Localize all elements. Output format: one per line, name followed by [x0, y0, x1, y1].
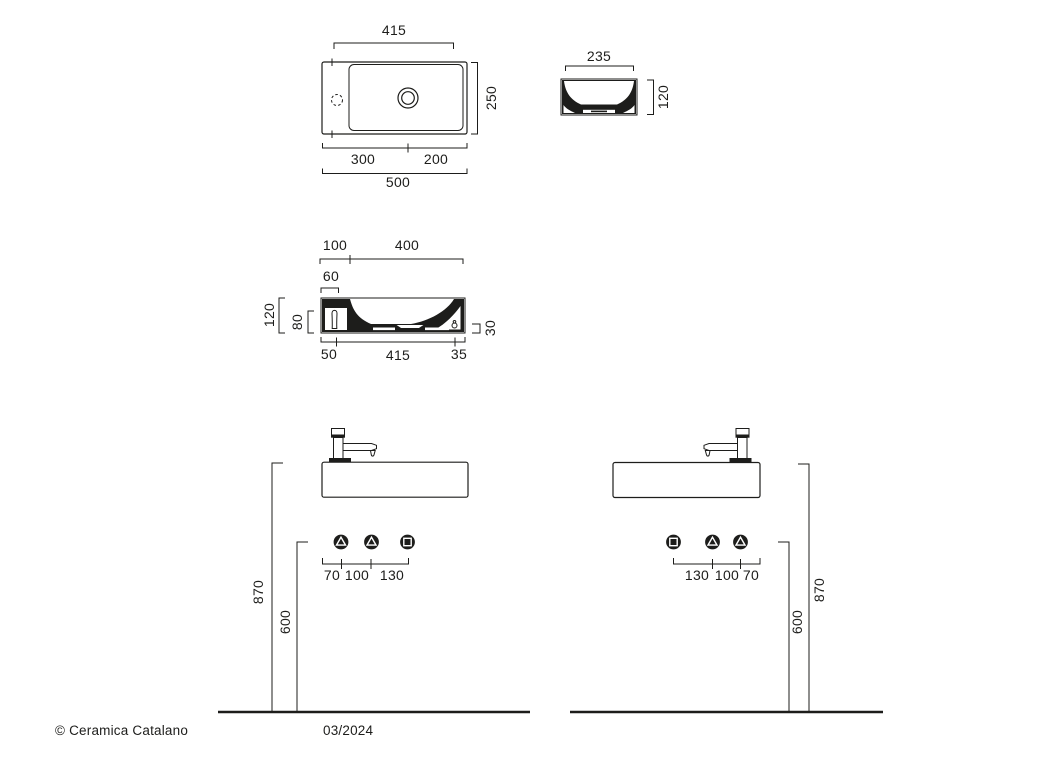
drain-hole-icon: [398, 88, 418, 108]
dim-label: 400: [395, 237, 419, 253]
water-supply-icon: [705, 535, 720, 550]
dim-label: 600: [789, 610, 805, 634]
copyright-text: © Ceramica Catalano: [55, 723, 188, 738]
dim-label: 235: [587, 48, 611, 64]
dim-label: 250: [483, 86, 499, 110]
dim-label: 100: [323, 237, 347, 253]
drawing-sheet: 415 250 300 200 500 235 120: [0, 0, 1041, 776]
dim-label: 60: [323, 268, 339, 284]
dim-label: 120: [655, 85, 671, 109]
technical-drawing: 415 250 300 200 500 235 120: [0, 0, 1041, 776]
dim-label: 35: [451, 346, 467, 362]
drain-connection-icon: [400, 535, 415, 550]
revision-date: 03/2024: [323, 723, 373, 738]
long-section-view: 100 400 60 120 80 50 415 35 30: [261, 237, 498, 363]
footer: © Ceramica Catalano 03/2024: [55, 723, 373, 738]
dim-label: 415: [382, 22, 406, 38]
dim-label: 300: [351, 151, 375, 167]
faucet-icon: [704, 429, 752, 463]
dim-label: 870: [811, 578, 827, 602]
dim-label: 200: [424, 151, 448, 167]
dim-label: 70: [324, 567, 340, 583]
washbasin-front: [322, 462, 468, 497]
water-supply-icon: [334, 535, 349, 550]
front-installation-right: 870 600 130 100 70: [570, 429, 883, 713]
drain-connection-icon: [666, 535, 681, 550]
dim-label: 130: [380, 567, 404, 583]
front-installation-left: 870 600 70 100 130: [218, 429, 530, 713]
dim-label: 30: [482, 320, 498, 336]
side-section-view: 235 120: [561, 48, 671, 115]
water-supply-icon: [733, 535, 748, 550]
plan-view: 415 250 300 200 500: [322, 22, 499, 190]
faucet-icon: [329, 429, 377, 463]
dim-label: 130: [685, 567, 709, 583]
dim-label: 100: [715, 567, 739, 583]
dim-label: 50: [321, 346, 337, 362]
dim-label: 100: [345, 567, 369, 583]
washbasin-front: [613, 463, 760, 498]
optional-taphole-icon: [332, 95, 343, 106]
dim-label: 120: [261, 303, 277, 327]
dim-label: 600: [277, 610, 293, 634]
fixing-hole-icon: [332, 310, 337, 328]
dim-label: 80: [289, 314, 305, 330]
drain-outlet-icon: [395, 325, 425, 329]
dim-label: 870: [250, 580, 266, 604]
dim-label: 415: [386, 347, 410, 363]
dim-label: 70: [743, 567, 759, 583]
dim-label: 500: [386, 174, 410, 190]
water-supply-icon: [364, 535, 379, 550]
